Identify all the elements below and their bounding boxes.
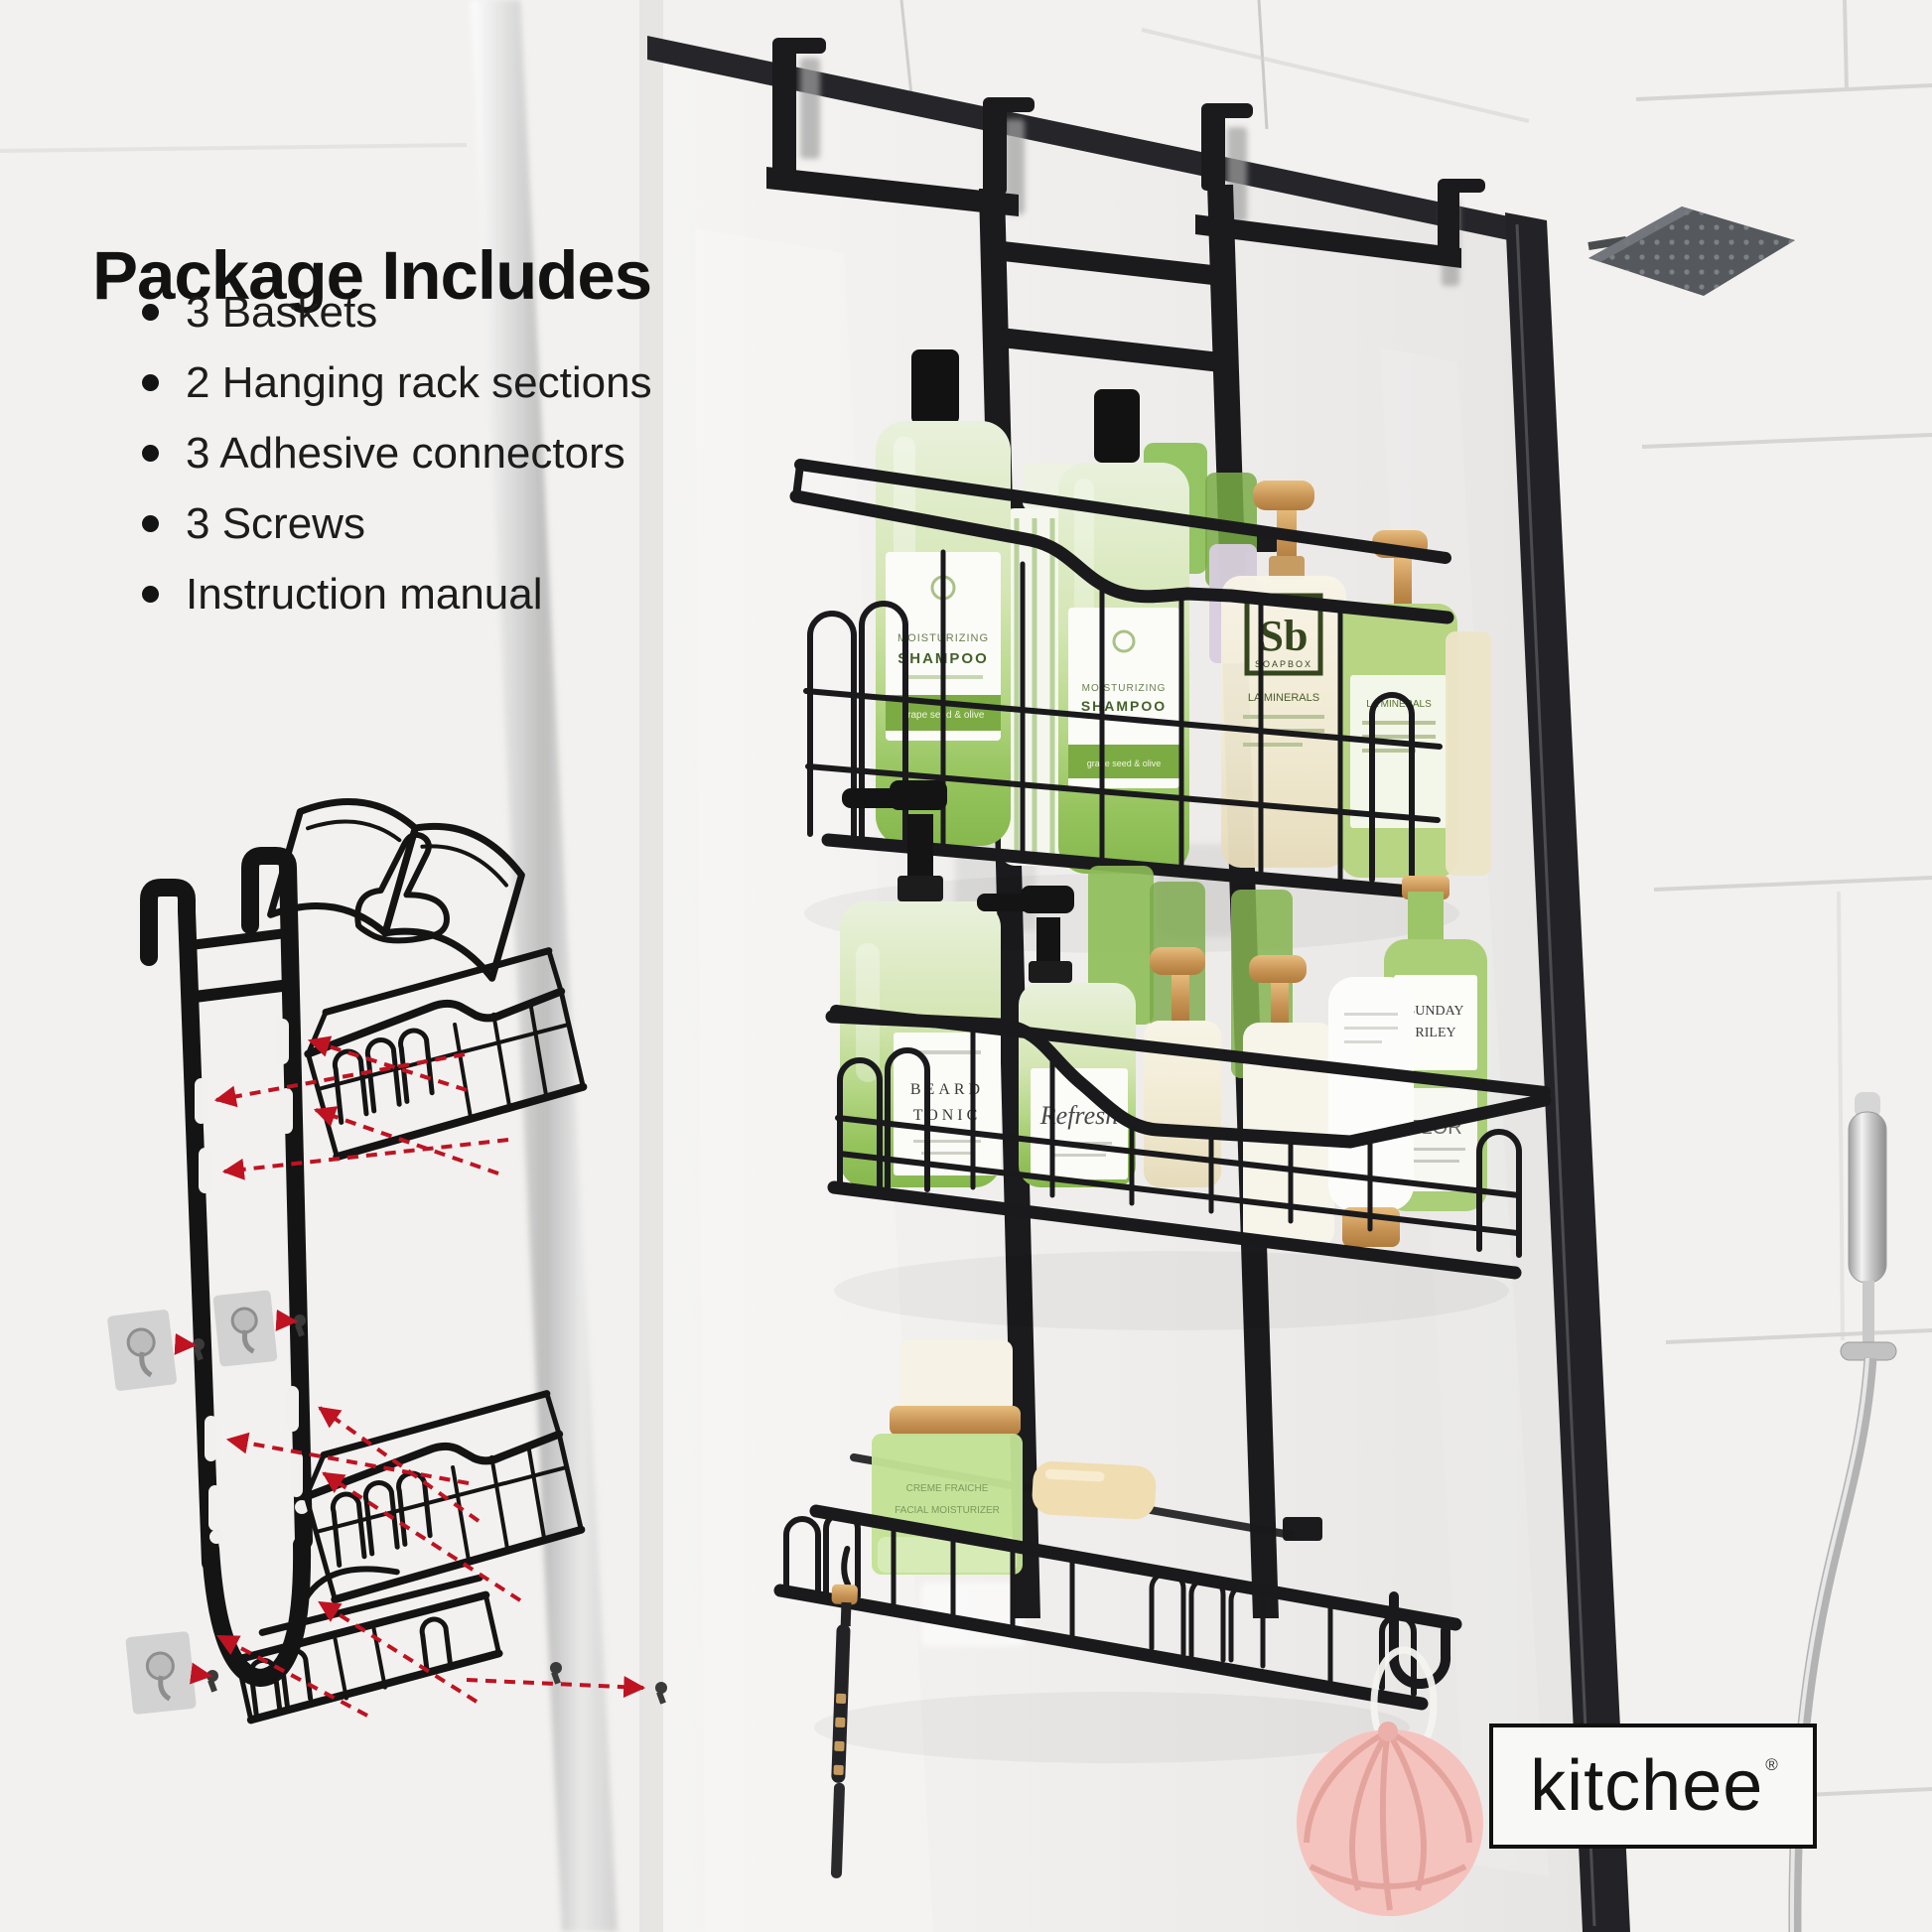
list-item: 2 Hanging rack sections xyxy=(142,352,652,423)
package-includes-list: 3 Baskets 2 Hanging rack sections 3 Adhe… xyxy=(142,282,652,634)
list-item-label: Instruction manual xyxy=(186,570,543,619)
label-text: Sb xyxy=(1260,612,1309,660)
label-text: SOAPBOX xyxy=(1255,659,1312,669)
list-item-label: 3 Baskets xyxy=(186,288,377,337)
hand-shower-stem xyxy=(1863,1281,1874,1348)
bullet-icon xyxy=(142,515,159,532)
list-item: 3 Baskets xyxy=(142,282,652,352)
label-text: grape seed & olive xyxy=(1087,759,1162,768)
copper-band xyxy=(890,1406,1021,1436)
list-item: Instruction manual xyxy=(142,564,652,634)
label-text: RILEY xyxy=(1415,1026,1455,1040)
cream-jar xyxy=(890,1340,1021,1436)
adhesive-pad-icon xyxy=(212,1290,277,1367)
label-text: SHAMPOO xyxy=(1081,698,1167,714)
label-text: MOISTURIZING xyxy=(1082,683,1167,694)
adhesive-pad-icon xyxy=(125,1631,197,1715)
bottle-cap xyxy=(911,349,959,425)
gold-pump xyxy=(1249,955,1307,983)
brand-logo: kitchee® xyxy=(1489,1724,1817,1849)
soft-shadow xyxy=(814,1692,1410,1763)
registered-trademark: ® xyxy=(1765,1756,1778,1773)
hand-shower-handle xyxy=(1849,1112,1886,1283)
label-text: CREME FRAICHE xyxy=(906,1483,989,1494)
list-item: 3 Screws xyxy=(142,493,652,564)
soap-bar xyxy=(1032,1460,1158,1520)
label-text: SUNDAY xyxy=(1407,1004,1463,1019)
bullet-icon xyxy=(142,374,159,391)
bullet-icon xyxy=(142,445,159,462)
brand-name: kitchee xyxy=(1530,1745,1763,1827)
list-item: 3 Adhesive connectors xyxy=(142,423,652,493)
product-infographic: MOISTURIZING SHAMPOO grape seed & olive … xyxy=(0,0,1932,1932)
bullet-icon xyxy=(142,304,159,321)
bullet-icon xyxy=(142,586,159,603)
adhesive-pad-icon xyxy=(107,1309,178,1391)
shower-holder-bracket xyxy=(1841,1342,1896,1360)
list-item-label: 3 Screws xyxy=(186,499,365,548)
gold-pump xyxy=(1253,481,1314,510)
list-item-label: 2 Hanging rack sections xyxy=(186,358,652,407)
razor-head xyxy=(831,1585,858,1605)
cream-bottle xyxy=(1446,631,1491,876)
label-text: FACIAL MOISTURIZER xyxy=(895,1505,1000,1516)
gold-pump xyxy=(1150,947,1205,975)
list-item-label: 3 Adhesive connectors xyxy=(186,429,625,478)
bottle-cap xyxy=(1094,389,1140,463)
